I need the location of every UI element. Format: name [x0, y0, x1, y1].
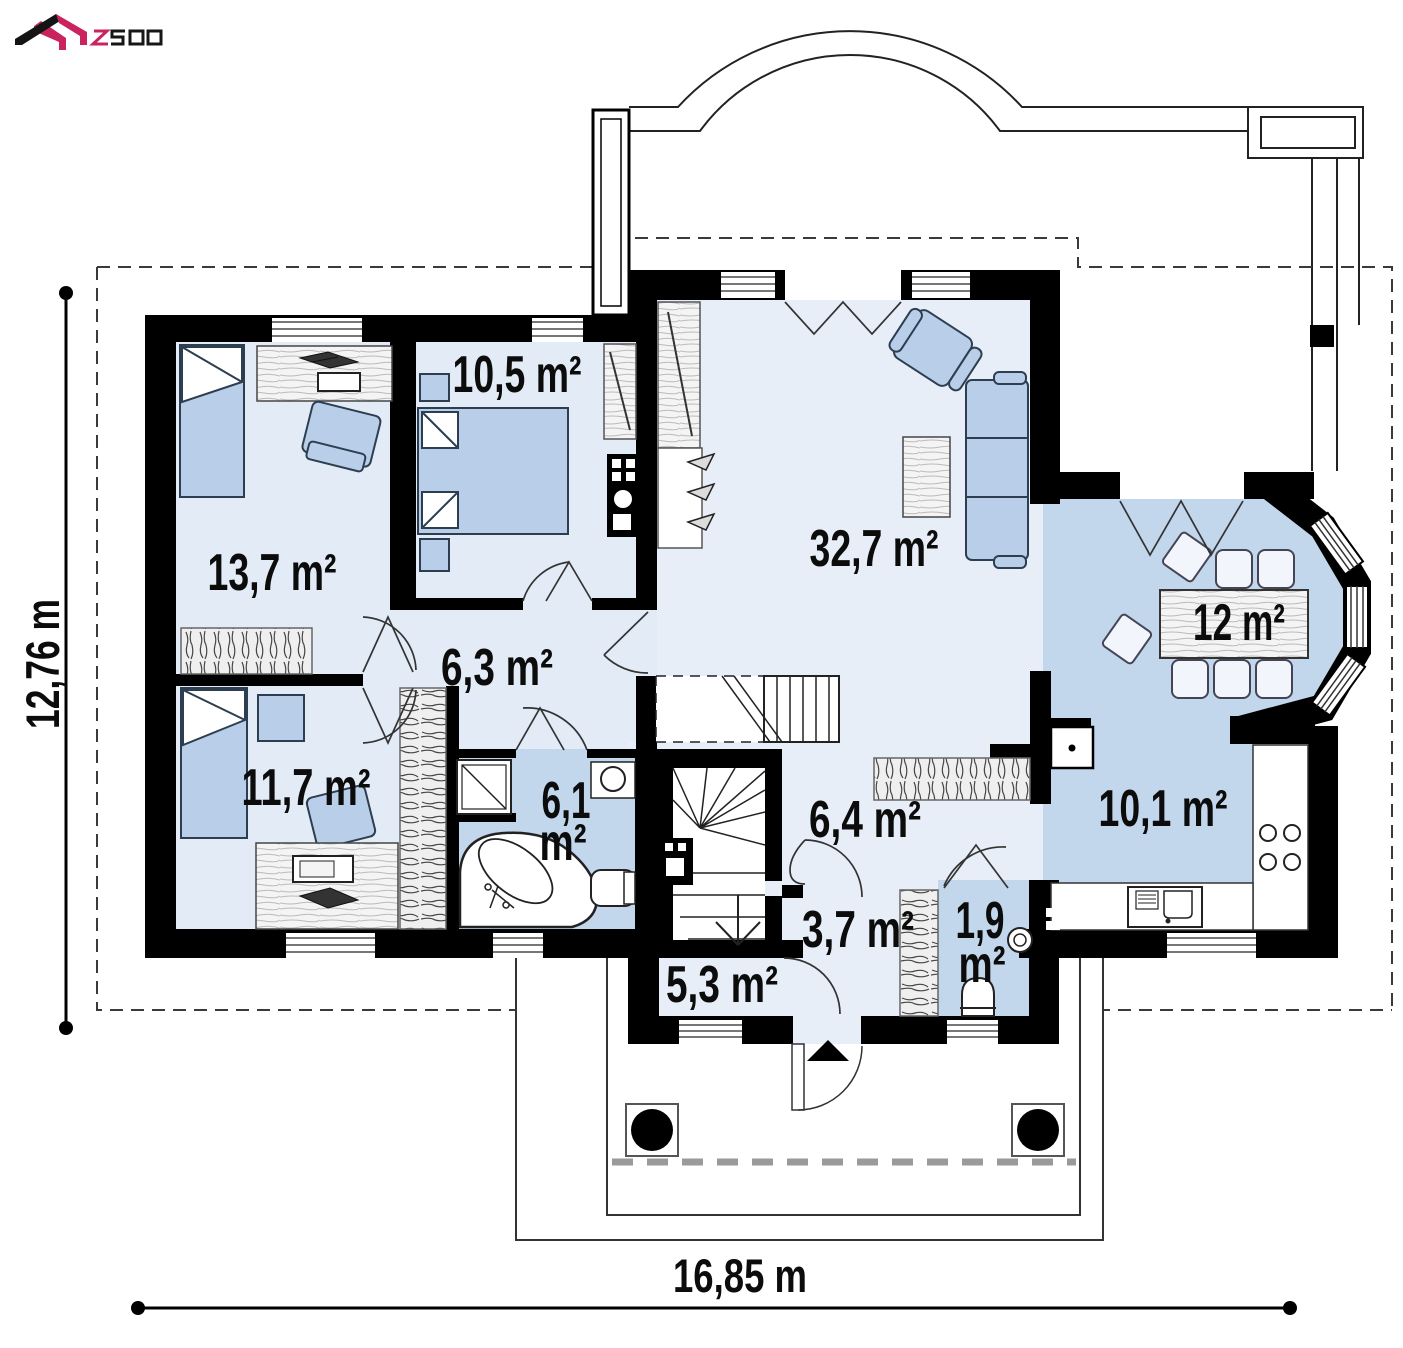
svg-text:m²: m² [540, 814, 587, 872]
svg-text:6,3 m²: 6,3 m² [441, 639, 553, 697]
svg-text:12,76 m: 12,76 m [16, 599, 69, 729]
svg-text:16,85 m: 16,85 m [673, 1249, 807, 1302]
svg-text:6,4 m²: 6,4 m² [809, 791, 921, 849]
svg-text:10,1 m²: 10,1 m² [1099, 780, 1228, 838]
svg-text:32,7 m²: 32,7 m² [810, 520, 939, 578]
svg-text:3,7 m²: 3,7 m² [802, 901, 914, 959]
svg-text:12 m²: 12 m² [1193, 594, 1285, 652]
svg-text:m²: m² [959, 936, 1006, 994]
svg-text:10,5 m²: 10,5 m² [453, 346, 582, 404]
svg-text:5,3 m²: 5,3 m² [666, 956, 778, 1014]
svg-text:13,7 m²: 13,7 m² [208, 544, 337, 602]
svg-text:11,7 m²: 11,7 m² [242, 759, 371, 817]
